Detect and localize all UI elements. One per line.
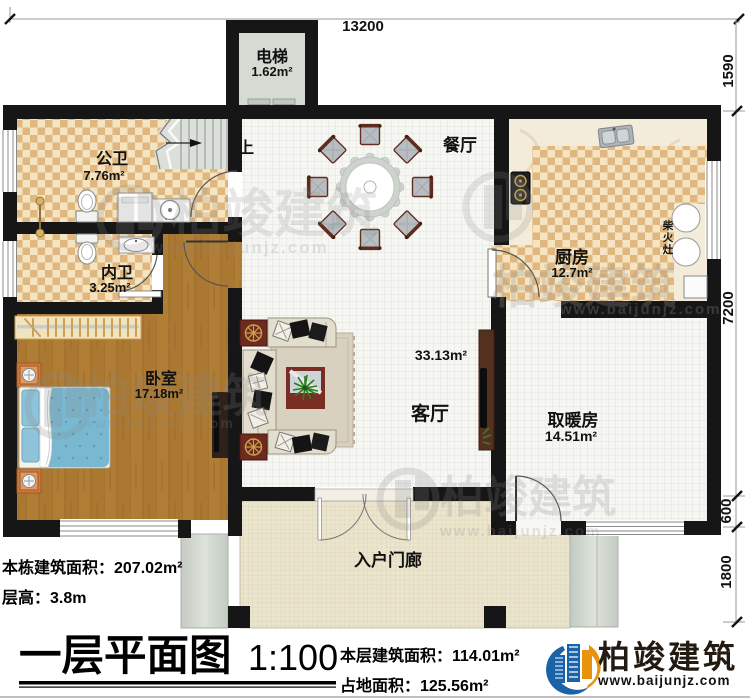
svg-text:本栋建筑面积：207.02m²: 本栋建筑面积：207.02m² (2, 558, 183, 577)
svg-text:600: 600 (718, 498, 735, 523)
svg-text:厨房: 厨房 (555, 247, 589, 267)
svg-text:柏竣建筑: 柏竣建筑 (170, 186, 378, 244)
svg-text:1.62m²: 1.62m² (251, 64, 293, 79)
svg-text:www.baijunjz.com: www.baijunjz.com (439, 523, 601, 540)
svg-text:www.baijunjz.com: www.baijunjz.com (81, 415, 235, 431)
svg-text:柏竣建筑: 柏竣建筑 (598, 639, 738, 675)
svg-text:7.76m²: 7.76m² (83, 168, 125, 183)
svg-text:3.25m²: 3.25m² (89, 280, 131, 295)
svg-text:餐厅: 餐厅 (443, 135, 477, 155)
svg-text:占地面积：125.56m²: 占地面积：125.56m² (340, 676, 489, 695)
svg-text:14.51m²: 14.51m² (545, 428, 597, 444)
svg-text:取暖房: 取暖房 (548, 410, 599, 430)
svg-text:www.baijunjz.com: www.baijunjz.com (149, 238, 329, 257)
svg-text:7200: 7200 (720, 291, 737, 324)
svg-text:柏竣建筑: 柏竣建筑 (440, 473, 616, 522)
svg-text:1:100: 1:100 (248, 637, 338, 678)
svg-text:1590: 1590 (720, 54, 737, 87)
svg-text:www.baijunjz.com: www.baijunjz.com (597, 673, 731, 688)
svg-text:www.baijunjz.com: www.baijunjz.com (559, 301, 721, 318)
svg-text:层高：3.8m: 层高：3.8m (2, 588, 86, 607)
svg-text:上: 上 (238, 139, 254, 157)
svg-text:13200: 13200 (342, 18, 384, 35)
svg-text:公卫: 公卫 (96, 150, 128, 168)
svg-text:33.13m²: 33.13m² (415, 347, 467, 363)
svg-text:客厅: 客厅 (411, 402, 449, 425)
svg-text:柴: 柴 (662, 219, 674, 232)
svg-text:一层平面图: 一层平面图 (19, 633, 232, 680)
svg-text:灶: 灶 (663, 243, 674, 256)
svg-text:火: 火 (663, 232, 674, 244)
svg-text:入户门廊: 入户门廊 (354, 550, 422, 570)
svg-text:本层建筑面积：114.01m²: 本层建筑面积：114.01m² (340, 646, 520, 665)
svg-text:17.18m²: 17.18m² (135, 386, 184, 401)
svg-text:12.7m²: 12.7m² (551, 265, 593, 280)
svg-text:1800: 1800 (718, 555, 735, 588)
